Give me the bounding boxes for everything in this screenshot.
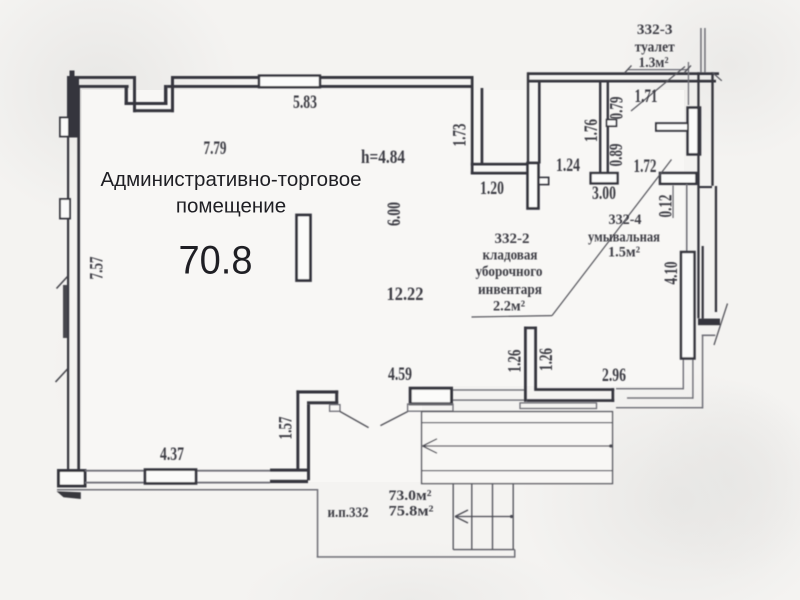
svg-text:5.83: 5.83 [293,92,317,113]
svg-text:0.89: 0.89 [606,144,627,167]
svg-text:7.79: 7.79 [204,138,227,159]
svg-text:кладовая: кладовая [483,248,538,264]
svg-text:6.00: 6.00 [384,202,405,226]
svg-text:h=4.84: h=4.84 [361,147,405,168]
svg-text:1.26: 1.26 [536,348,557,371]
svg-text:и.п.332: и.п.332 [328,505,369,521]
svg-text:4.37: 4.37 [160,444,184,465]
svg-text:332-4: 332-4 [609,212,642,228]
svg-text:инвентаря: инвентаря [478,282,542,298]
svg-text:умывальная: умывальная [588,230,660,246]
svg-text:4.10: 4.10 [661,262,682,285]
svg-text:1.26: 1.26 [505,350,526,373]
svg-text:73.0м²: 73.0м² [389,488,433,504]
svg-text:0.12: 0.12 [656,195,677,218]
svg-text:70.8: 70.8 [179,239,253,283]
svg-text:0.79: 0.79 [607,97,628,120]
svg-text:туалет: туалет [635,40,676,56]
svg-text:75.8м²: 75.8м² [389,504,435,520]
svg-text:1.5м²: 1.5м² [608,245,640,261]
svg-text:7.57: 7.57 [87,256,108,279]
svg-text:1.73: 1.73 [449,124,470,147]
svg-text:2.2м²: 2.2м² [493,299,525,315]
svg-text:помещение: помещение [176,195,286,218]
svg-text:1.24: 1.24 [556,155,580,176]
svg-text:1.72: 1.72 [634,156,657,177]
svg-text:1.71: 1.71 [635,86,658,107]
svg-text:12.22: 12.22 [387,284,424,305]
svg-text:4.59: 4.59 [388,364,412,385]
svg-text:уборочного: уборочного [476,264,543,280]
svg-text:1.20: 1.20 [480,178,504,199]
svg-text:2.96: 2.96 [602,365,626,386]
svg-text:332-3: 332-3 [637,22,673,38]
svg-text:3.00: 3.00 [592,183,616,204]
svg-text:1.57: 1.57 [276,416,297,439]
svg-text:Административно-торговое: Административно-торговое [100,168,361,191]
svg-text:1.76: 1.76 [581,119,602,142]
svg-text:332-2: 332-2 [495,231,530,247]
svg-text:1.3м²: 1.3м² [639,55,669,71]
